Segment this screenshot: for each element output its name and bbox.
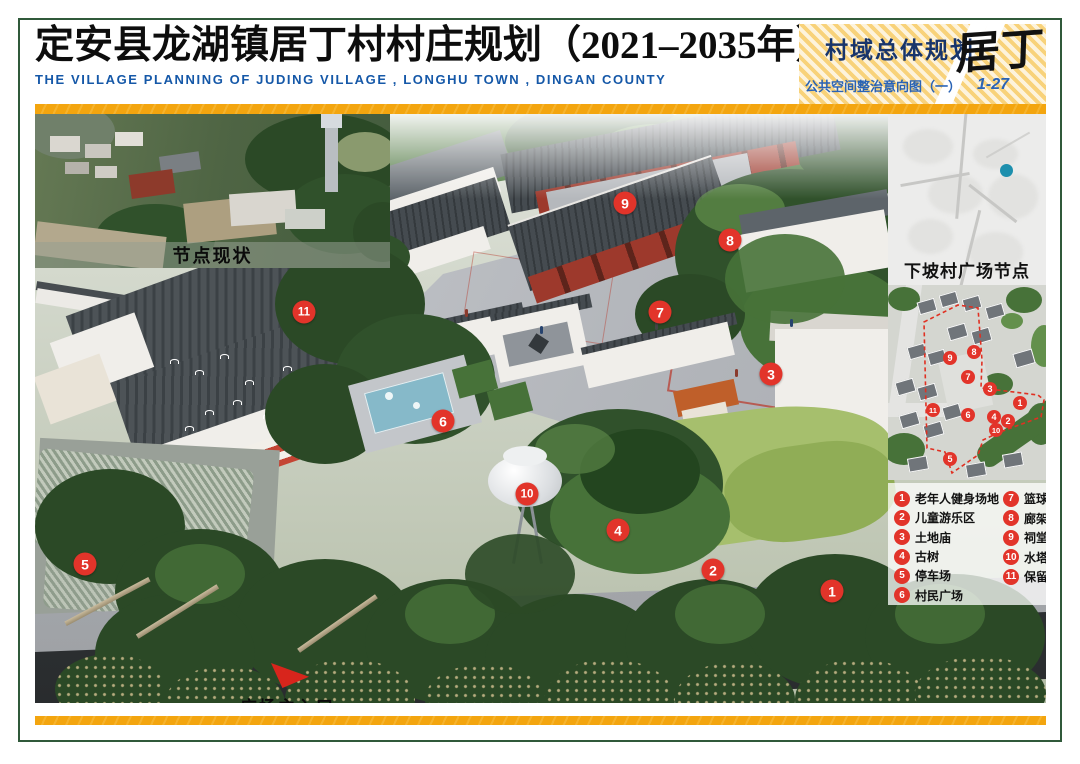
render-shape <box>170 359 179 364</box>
legend-item: 3土地庙 <box>894 528 999 547</box>
legend-label: 保留建筑 <box>1024 568 1046 585</box>
legend-label: 老年人健身场地 <box>915 490 999 507</box>
plan-marker-11: 11 <box>926 403 940 417</box>
page-title: 定安县龙湖镇居丁村村庄规划（2021–2035年） <box>35 24 799 69</box>
render-shape <box>195 370 204 375</box>
render-shape <box>321 114 342 128</box>
legend: 1老年人健身场地2儿童游乐区3土地庙4古树5停车场6村民广场7篮球场8廊架9祠堂… <box>888 483 1046 605</box>
render-shape <box>245 380 254 385</box>
legend-number-badge: 2 <box>894 510 910 526</box>
legend-label: 古树 <box>915 548 939 565</box>
render-shape <box>735 369 738 377</box>
legend-item: 2儿童游乐区 <box>894 508 999 527</box>
legend-number-badge: 6 <box>894 587 910 603</box>
plan-type-label: 村域总体规划 <box>825 31 975 65</box>
photo-label: 节点现状 <box>173 242 253 268</box>
render-shape <box>903 129 953 164</box>
plan-marker-6: 6 <box>961 408 975 422</box>
legend-number-badge: 8 <box>1003 510 1019 526</box>
legend-item: 1老年人健身场地 <box>894 489 999 508</box>
current-state-photo: 节点现状 <box>35 114 390 268</box>
render-shape <box>325 120 338 192</box>
render-marker-7: 7 <box>649 301 672 324</box>
render-shape <box>540 326 543 334</box>
legend-label: 儿童游乐区 <box>915 509 975 526</box>
render-marker-8: 8 <box>719 229 742 252</box>
legend-item: 9祠堂 <box>1003 528 1046 548</box>
plan-marker-3: 3 <box>983 382 997 396</box>
render-shape <box>413 402 420 409</box>
legend-column: 7篮球场8廊架9祠堂10水塔11保留建筑 <box>1003 489 1046 605</box>
map-location-dot <box>1000 164 1013 177</box>
render-shape <box>908 219 953 254</box>
render-shape <box>220 354 229 359</box>
village-logo-seal: 居丁 <box>955 27 1044 77</box>
render-shape <box>465 534 575 614</box>
plan-marker-7: 7 <box>961 370 975 384</box>
legend-number-badge: 9 <box>1003 530 1019 546</box>
title-block: 定安县龙湖镇居丁村村庄规划（2021–2035年） THE VILLAGE PL… <box>35 24 799 104</box>
legend-label: 停车场 <box>915 567 951 584</box>
render-shape <box>283 366 292 371</box>
legend-item: 10水塔 <box>1003 548 1046 568</box>
legend-label: 篮球场 <box>1024 490 1046 507</box>
legend-number-badge: 4 <box>894 549 910 565</box>
plan-marker-8: 8 <box>967 345 981 359</box>
render-shape <box>285 209 325 229</box>
legend-item: 7篮球场 <box>1003 489 1046 509</box>
entrance-label: 广场主入口 <box>240 693 335 703</box>
render-shape <box>233 400 242 405</box>
planning-poster: 定安县龙湖镇居丁村村庄规划（2021–2035年） THE VILLAGE PL… <box>0 0 1080 764</box>
render-shape <box>50 136 80 152</box>
legend-label: 土地庙 <box>915 529 951 546</box>
legend-label: 廊架 <box>1024 510 1046 527</box>
plan-marker-1: 1 <box>1013 396 1027 410</box>
render-shape <box>185 426 194 431</box>
render-shape <box>988 174 1038 219</box>
map-label: 下坡村广场节点 <box>888 257 1046 282</box>
sheet-info-box: 村域总体规划 公共空间整治意向图（一） 1-27 居丁 <box>799 24 1046 104</box>
legend-item: 6村民广场 <box>894 586 999 605</box>
top-accent-bar <box>35 104 1046 114</box>
render-shape <box>675 584 765 644</box>
render-marker-10: 10 <box>516 483 539 506</box>
render-shape <box>790 319 793 327</box>
location-map: 下坡村广场节点 <box>888 114 1046 285</box>
legend-item: 4古树 <box>894 547 999 566</box>
legend-number-badge: 7 <box>1003 491 1019 507</box>
render-shape <box>725 234 845 324</box>
photo-label-band: 节点现状 <box>35 242 390 268</box>
render-marker-11: 11 <box>293 301 316 324</box>
render-shape <box>85 144 111 158</box>
legend-label: 村民广场 <box>915 587 963 604</box>
plan-marker-5: 5 <box>943 452 957 466</box>
render-shape <box>115 132 143 146</box>
legend-column: 1老年人健身场地2儿童游乐区3土地庙4古树5停车场6村民广场 <box>894 489 999 605</box>
site-plan-inset: 1234567891011 <box>888 285 1046 480</box>
render-shape <box>65 162 89 174</box>
plan-marker-2: 2 <box>1001 414 1015 428</box>
red-roof-building <box>129 169 176 199</box>
legend-label: 祠堂 <box>1024 529 1046 546</box>
legend-item: 8廊架 <box>1003 509 1046 529</box>
plan-marker-9: 9 <box>943 351 957 365</box>
render-marker-3: 3 <box>760 363 783 386</box>
render-marker-5: 5 <box>74 553 97 576</box>
legend-number-badge: 1 <box>894 491 910 507</box>
bottom-accent-bar <box>35 716 1046 725</box>
render-marker-1: 1 <box>821 580 844 603</box>
render-canvas: 1234567891011 节点现状 <box>35 114 1046 703</box>
plan-marker-4: 4 <box>987 410 1001 424</box>
legend-item: 5停车场 <box>894 566 999 585</box>
render-marker-6: 6 <box>432 410 455 433</box>
render-shape <box>465 309 468 317</box>
render-marker-2: 2 <box>702 559 725 582</box>
legend-number-badge: 10 <box>1003 549 1019 565</box>
render-shape <box>335 132 390 172</box>
plan-marker-10: 10 <box>989 423 1003 437</box>
header: 定安县龙湖镇居丁村村庄规划（2021–2035年） THE VILLAGE PL… <box>35 24 1046 104</box>
legend-number-badge: 11 <box>1003 569 1019 585</box>
legend-label: 水塔 <box>1024 549 1046 566</box>
render-marker-4: 4 <box>607 519 630 542</box>
render-shape <box>95 166 117 178</box>
page-subtitle: THE VILLAGE PLANNING OF JUDING VILLAGE ,… <box>35 72 799 87</box>
legend-item: 11保留建筑 <box>1003 567 1046 587</box>
sheet-number: 1-27 <box>977 76 1009 94</box>
legend-number-badge: 5 <box>894 568 910 584</box>
render-shape <box>385 392 393 400</box>
render-shape <box>205 410 214 415</box>
legend-number-badge: 3 <box>894 529 910 545</box>
sheet-name-label: 公共空间整治意向图（一） <box>805 76 961 95</box>
render-marker-9: 9 <box>614 192 637 215</box>
